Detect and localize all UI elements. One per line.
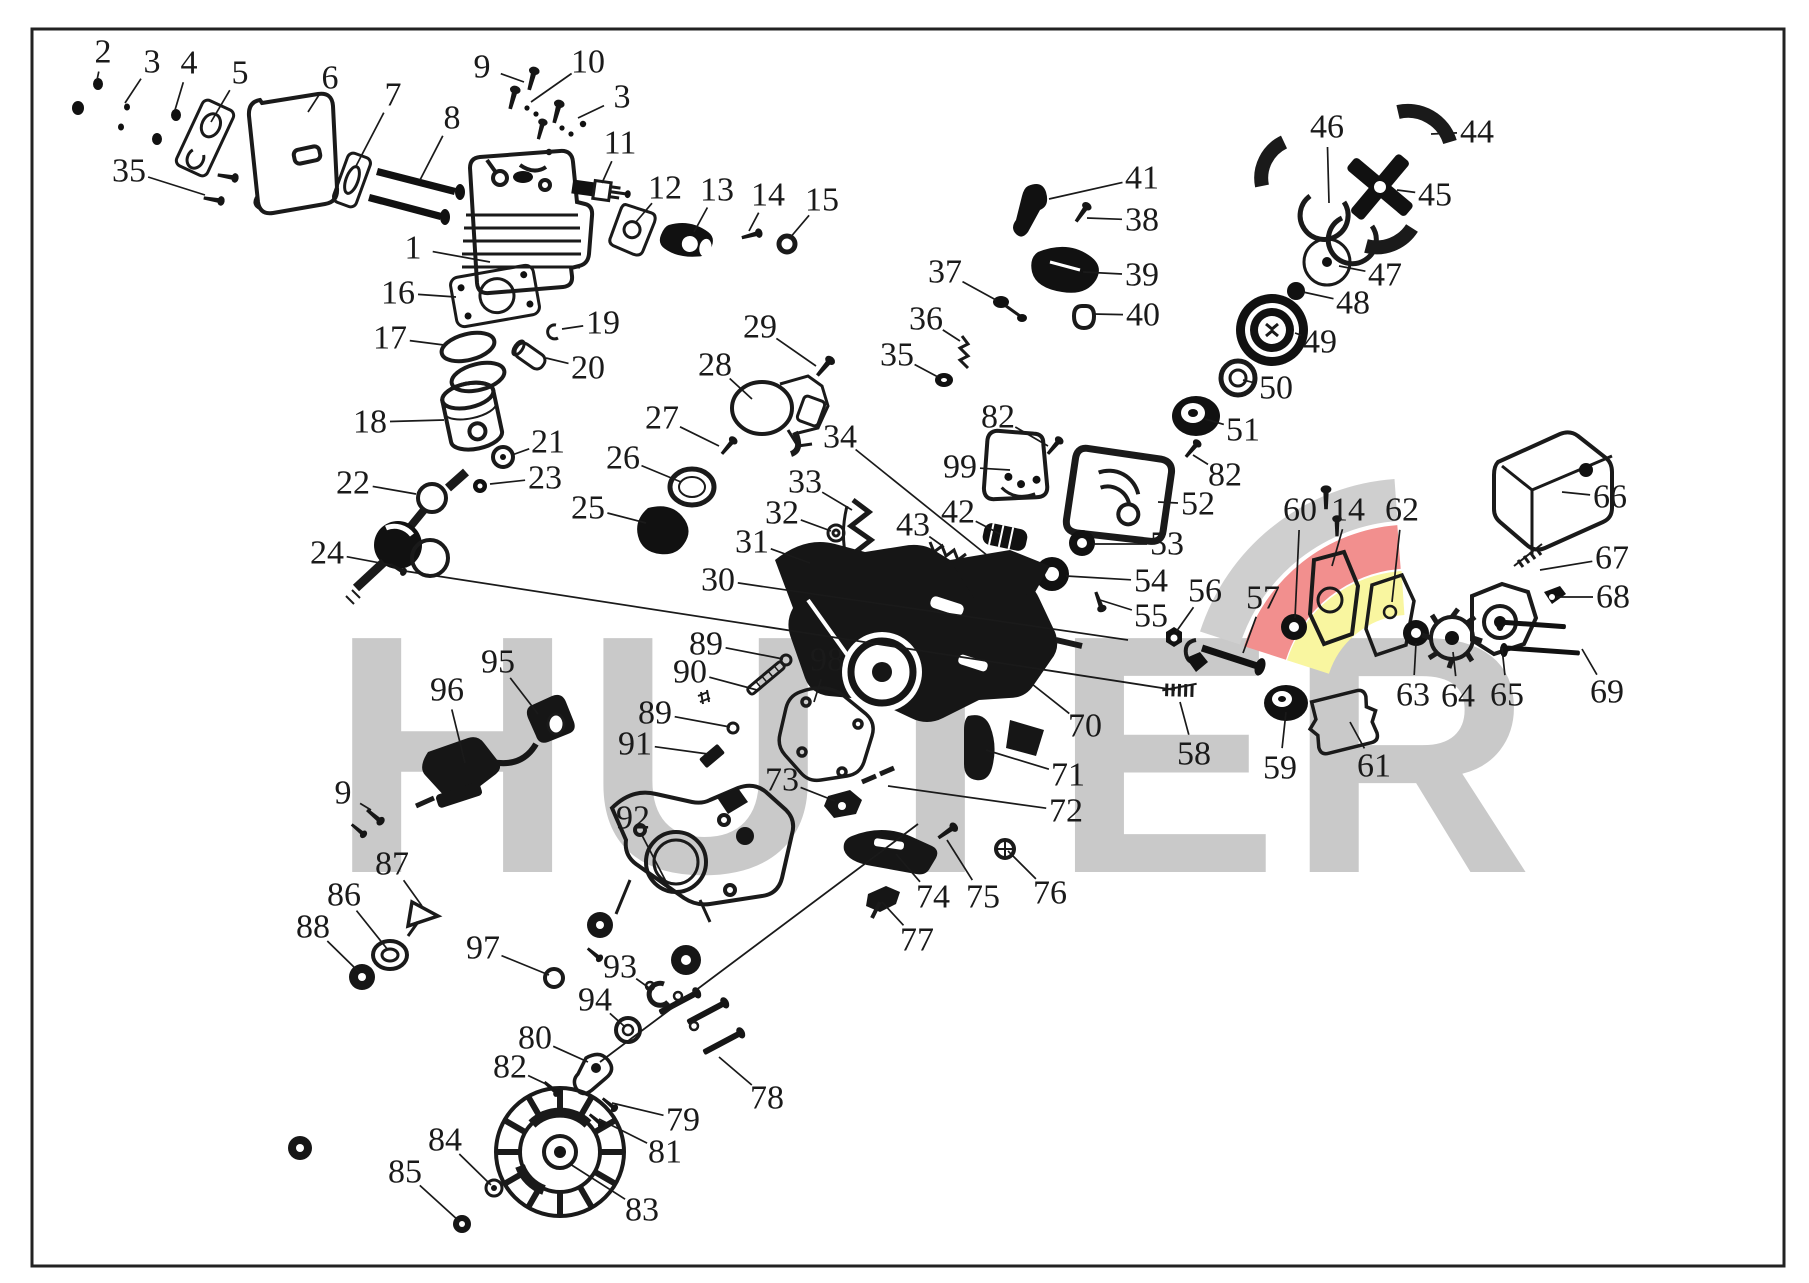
callout-leader: [512, 449, 529, 455]
callout-label: 95: [481, 644, 515, 681]
callout-label: 92: [616, 800, 650, 837]
exploded-parts-diagram: HUTER: [0, 0, 1809, 1283]
callout-label: 39: [1125, 257, 1159, 294]
callout-label: 19: [586, 305, 620, 342]
part-seal-86: [373, 941, 407, 969]
callout-leader: [528, 1076, 546, 1085]
callout-leader: [602, 161, 612, 183]
callout-label: 28: [698, 347, 732, 384]
callout-leader: [420, 1185, 459, 1221]
callout-label: 61: [1357, 748, 1391, 785]
callout-leader: [749, 213, 759, 231]
callout-leader: [801, 520, 831, 531]
callout-label: 45: [1418, 177, 1452, 214]
callout-label: 15: [805, 182, 839, 219]
callout-label: 99: [943, 449, 977, 486]
callout-leader: [1049, 182, 1123, 199]
callout-label: 69: [1590, 674, 1624, 711]
callout-label: 49: [1303, 324, 1337, 361]
callout-leader: [943, 330, 960, 341]
part-circlip-93: [649, 983, 668, 1005]
callout-leader: [1328, 147, 1330, 203]
callout-label: 35: [880, 337, 914, 374]
callout-label: 2: [95, 34, 112, 71]
callout-label: 57: [1246, 580, 1280, 617]
part-oiler-worm: [981, 522, 1029, 553]
part-intake-boot: [637, 506, 688, 554]
callout-leader: [562, 326, 583, 329]
callout-label: 82: [493, 1049, 527, 1086]
callout-label: 62: [1385, 492, 1419, 529]
callout-leader: [553, 1046, 588, 1062]
callout-label: 73: [765, 762, 799, 799]
callout-label: 14: [1331, 492, 1365, 529]
callout-leader: [148, 177, 205, 195]
part-intake-gasket: [608, 203, 657, 257]
callout-label: 9: [335, 775, 352, 812]
callout-label: 25: [571, 490, 605, 527]
callout-label: 44: [1460, 114, 1494, 151]
callout-leader: [915, 365, 938, 378]
callout-leader: [308, 95, 319, 112]
callout-label: 78: [750, 1080, 784, 1117]
callout-label: 91: [618, 726, 652, 763]
callout-label: 74: [916, 879, 950, 916]
callout-leader: [578, 106, 604, 118]
callout-label: 13: [700, 172, 734, 209]
callout-label: 36: [909, 301, 943, 338]
callout-label: 68: [1596, 579, 1630, 616]
part-long-screws: [368, 168, 465, 225]
callout-label: 55: [1134, 598, 1168, 635]
callout-leader: [410, 341, 444, 345]
callout-label: 12: [648, 170, 682, 207]
part-intake-flange: [658, 219, 716, 261]
callout-label: 47: [1368, 257, 1402, 294]
callout-leader: [789, 215, 809, 239]
callout-label: 83: [625, 1192, 659, 1229]
callout-label: 42: [941, 494, 975, 531]
callout-leader: [636, 979, 652, 990]
part-piston-ring: [439, 328, 498, 366]
part-o-ring-15: [779, 236, 795, 252]
callout-label: 18: [353, 404, 387, 441]
callout-label: 6: [322, 60, 339, 97]
part-exhaust-gasket: [332, 151, 372, 208]
callout-label: 67: [1595, 540, 1629, 577]
part-washer-32: [828, 525, 844, 541]
callout-leader: [1158, 502, 1178, 503]
part-carburetor: [732, 376, 828, 454]
callout-label: 94: [578, 982, 612, 1019]
part-seal-88: [349, 964, 375, 990]
callout-label: 3: [614, 79, 631, 116]
callout-label: 63: [1396, 677, 1430, 714]
callout-leader: [373, 486, 416, 494]
callout-label: 84: [428, 1122, 462, 1159]
callout-label: 66: [1593, 479, 1627, 516]
callout-label: 14: [751, 177, 785, 214]
callout-leader: [125, 79, 141, 103]
part-o-ring-26: [670, 469, 714, 505]
callout-label: 72: [1049, 793, 1083, 830]
callout-label: 56: [1188, 573, 1222, 610]
callout-label: 70: [1068, 708, 1102, 745]
part-starter-pawl-80: [574, 1054, 611, 1093]
callout-label: 75: [966, 879, 1000, 916]
callout-label: 8: [444, 100, 461, 137]
part-base-gasket: [449, 264, 540, 328]
callout-label: 71: [1051, 757, 1085, 794]
callout-label: 59: [1263, 750, 1297, 787]
part-clip-68: [1544, 586, 1566, 604]
callout-leader: [1582, 649, 1597, 675]
callout-label: 33: [788, 464, 822, 501]
callout-label: 82: [1208, 457, 1242, 494]
callout-label: 11: [604, 125, 637, 162]
callout-leader: [1093, 314, 1123, 315]
callout-label: 5: [232, 55, 249, 92]
callout-leader: [418, 294, 456, 297]
part-muffler-cover: [249, 94, 337, 214]
callout-label: 31: [735, 524, 769, 561]
callout-leader: [490, 480, 525, 484]
callout-leader: [501, 74, 524, 82]
callout-label: 17: [373, 320, 407, 357]
callout-label: 53: [1150, 526, 1184, 563]
callout-leader: [1431, 133, 1457, 134]
callout-label: 97: [466, 930, 500, 967]
callout-label: 54: [1134, 563, 1168, 600]
callout-label: 7: [385, 77, 402, 114]
callout-leader: [1540, 561, 1592, 570]
callout-label: 50: [1259, 370, 1293, 407]
callout-label: 81: [648, 1134, 682, 1171]
callout-leader: [459, 1154, 491, 1185]
callout-label: 23: [528, 460, 562, 497]
callout-label: 38: [1125, 202, 1159, 239]
callout-label: 16: [381, 275, 415, 312]
callout-label: 30: [701, 562, 735, 599]
part-wrist-pin: [511, 339, 548, 372]
callout-label: 64: [1441, 678, 1475, 715]
callout-label: 77: [900, 922, 934, 959]
callout-label: 93: [603, 949, 637, 986]
callout-label: 29: [743, 309, 777, 346]
callout-label: 88: [296, 909, 330, 946]
callout-label: 58: [1177, 736, 1211, 773]
callout-label: 1: [405, 230, 422, 267]
callout-label: 96: [430, 672, 464, 709]
callout-label: 76: [1033, 875, 1067, 912]
part-muffler-plate: [174, 98, 235, 178]
callout-leader: [1562, 492, 1590, 495]
callout-label: 27: [645, 400, 679, 437]
callout-label: 24: [310, 535, 344, 572]
callout-label: 35: [112, 153, 146, 190]
callout-label: 43: [896, 507, 930, 544]
callout-label: 41: [1125, 160, 1159, 197]
part-spark-plug: [571, 177, 632, 203]
callout-leader: [502, 956, 550, 975]
part-clutch-assembly: [1172, 111, 1450, 436]
callout-leader: [963, 282, 997, 300]
callout-label: 20: [571, 350, 605, 387]
callout-leader: [1339, 266, 1365, 271]
callout-label: 87: [375, 846, 409, 883]
callout-label: 65: [1490, 677, 1524, 714]
callout-label: 22: [336, 465, 370, 502]
callout-label: 48: [1336, 285, 1370, 322]
callout-leader: [1303, 292, 1334, 299]
callout-leader: [1193, 455, 1208, 464]
callout-leader: [175, 82, 183, 110]
callout-label: 34: [823, 419, 857, 456]
part-piston-ring: [449, 358, 508, 396]
callout-leader: [327, 941, 359, 972]
callout-leader: [776, 338, 816, 366]
part-circlip: [548, 325, 558, 339]
callout-leader: [719, 1057, 752, 1085]
callout-leader: [1397, 190, 1415, 192]
callout-leader: [1087, 218, 1122, 219]
callout-label: 98: [810, 642, 844, 679]
callout-leader: [390, 420, 444, 422]
callout-label: 21: [531, 424, 565, 461]
callout-leader: [612, 1103, 664, 1115]
callout-label: 3: [144, 44, 161, 81]
callout-label: 51: [1226, 412, 1260, 449]
callout-label: 26: [606, 440, 640, 477]
callout-label: 37: [928, 254, 962, 291]
callout-leader: [546, 358, 569, 363]
callout-leader: [680, 427, 719, 446]
callout-label: 60: [1283, 492, 1317, 529]
callout-label: 4: [181, 45, 198, 82]
callout-label: 85: [388, 1154, 422, 1191]
callout-label: 86: [327, 877, 361, 914]
callout-leader: [420, 136, 443, 180]
part-flywheel: [496, 1088, 624, 1216]
callout-leader: [822, 492, 852, 510]
callout-label: 46: [1310, 109, 1344, 146]
callout-label: 82: [981, 399, 1015, 436]
part-bar-plate: [974, 423, 1060, 512]
callout-leader: [531, 74, 572, 103]
callout-label: 9: [474, 49, 491, 86]
callout-label: 40: [1126, 297, 1160, 334]
part-o-ring-97: [545, 969, 563, 987]
part-small-fasteners: [72, 78, 181, 145]
callout-label: 90: [673, 654, 707, 691]
callout-label: 10: [571, 44, 605, 81]
part-case-screws-78: [646, 982, 747, 1058]
